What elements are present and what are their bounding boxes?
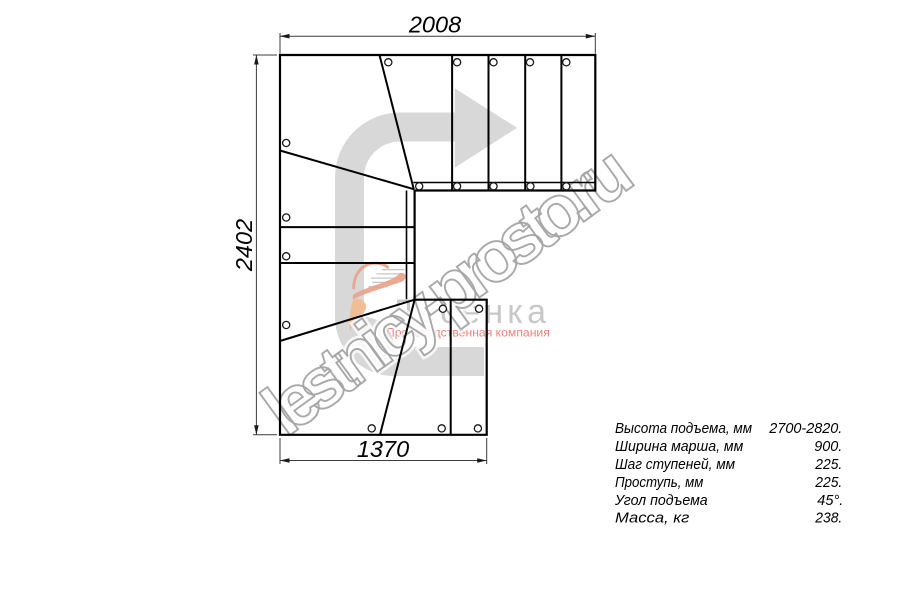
svg-text:2700-2820.: 2700-2820. (768, 420, 842, 437)
svg-text:45°.: 45°. (817, 492, 843, 509)
svg-text:Проступь, мм: Проступь, мм (615, 474, 703, 491)
svg-text:Угол подъема: Угол подъема (614, 492, 708, 509)
svg-text:Высота подъема, мм: Высота подъема, мм (615, 420, 752, 437)
svg-text:2008: 2008 (408, 12, 461, 38)
svg-text:Шаг ступеней, мм: Шаг ступеней, мм (615, 456, 735, 473)
svg-text:238.: 238. (814, 510, 842, 527)
svg-text:lestnicy-prosto.ru: lestnicy-prosto.ru (248, 133, 643, 451)
svg-text:Масса, кг: Масса, кг (615, 510, 690, 527)
svg-text:1370: 1370 (357, 436, 409, 462)
svg-text:Ширина марша, мм: Ширина марша, мм (615, 438, 743, 455)
svg-text:900.: 900. (814, 438, 842, 455)
svg-text:2402: 2402 (231, 219, 257, 272)
svg-text:225.: 225. (814, 456, 842, 473)
svg-text:225.: 225. (814, 474, 842, 491)
